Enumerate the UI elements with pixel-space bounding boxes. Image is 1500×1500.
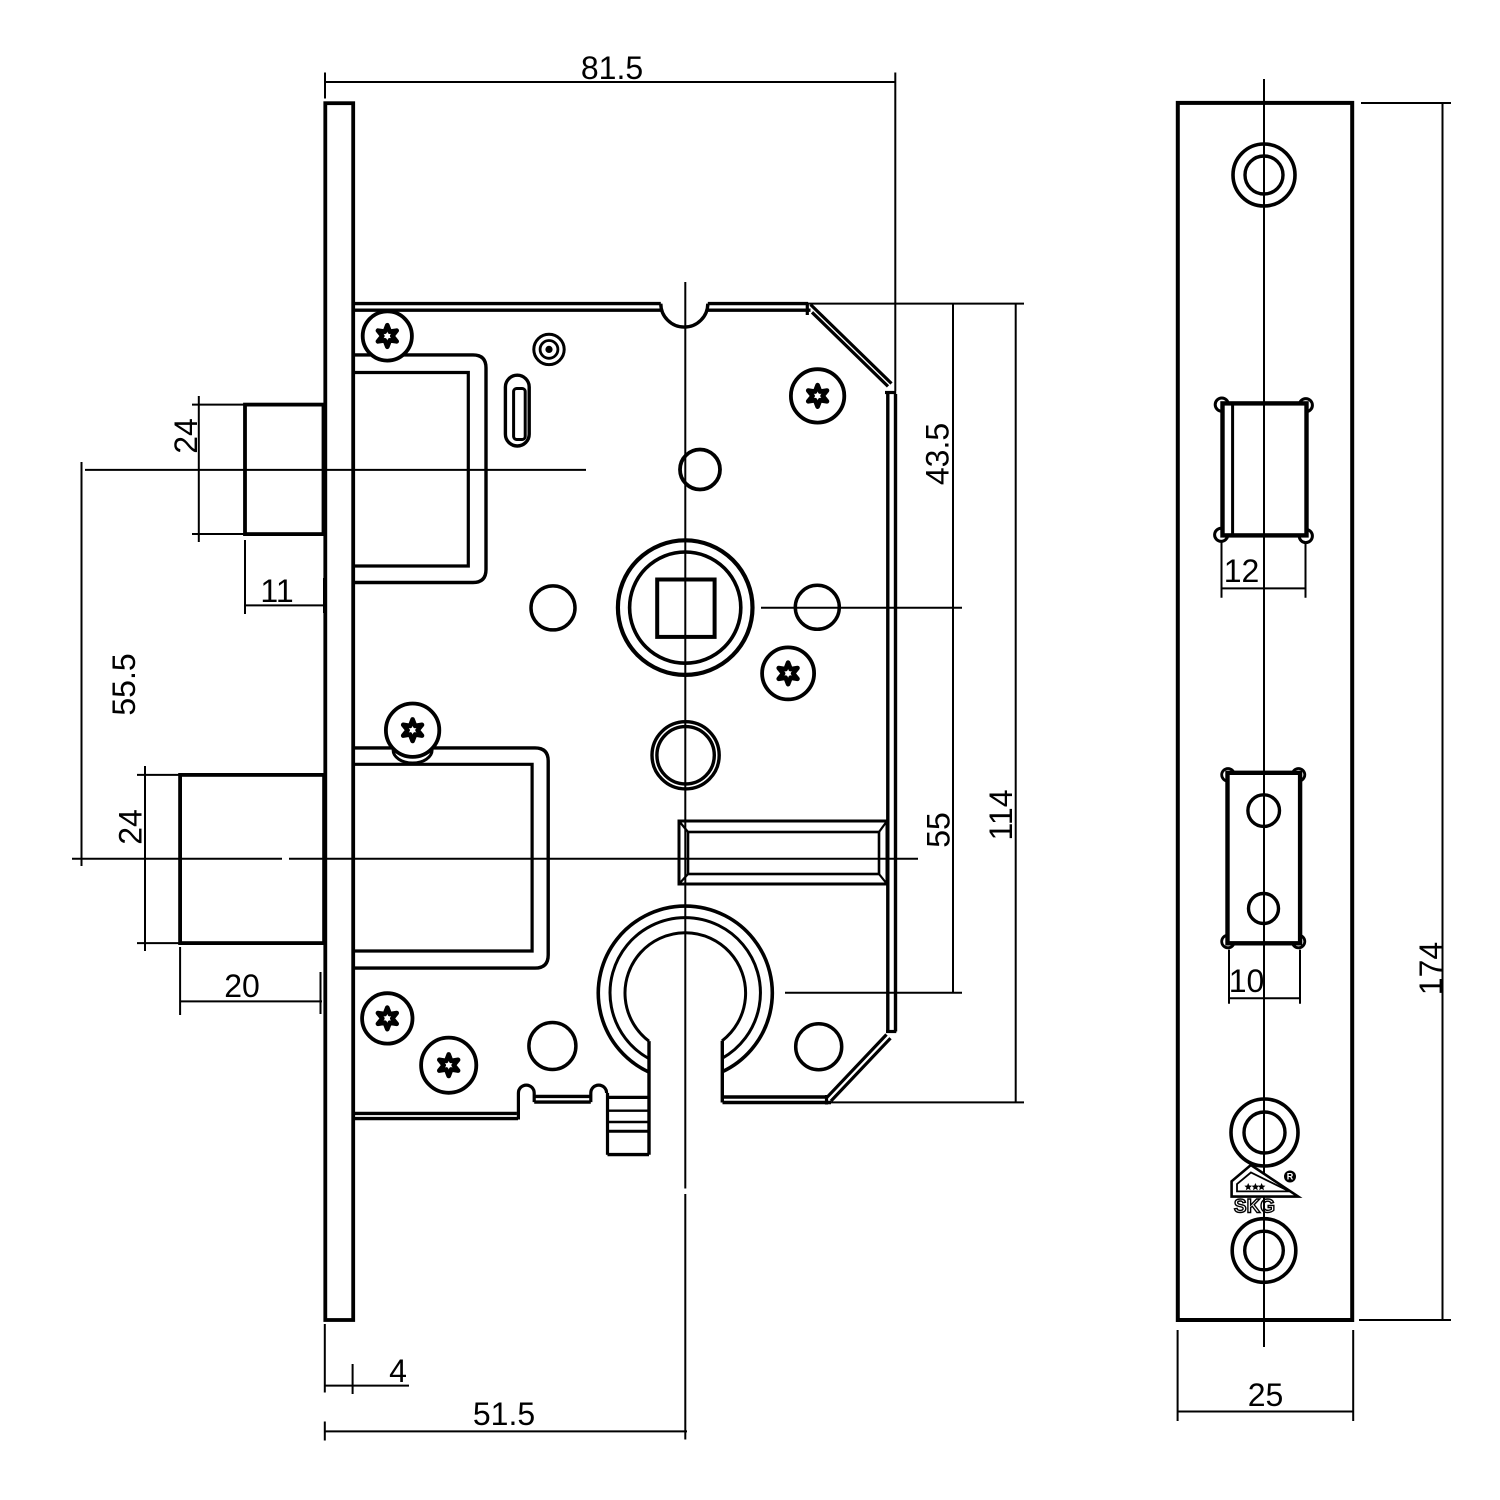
svg-text:25: 25 (1248, 1377, 1284, 1413)
svg-text:114: 114 (983, 789, 1019, 840)
svg-text:11: 11 (260, 573, 293, 609)
svg-text:81.5: 81.5 (581, 50, 643, 86)
svg-text:24: 24 (168, 418, 204, 454)
svg-text:51.5: 51.5 (473, 1396, 535, 1432)
svg-text:12: 12 (1224, 553, 1260, 589)
svg-text:55: 55 (920, 812, 956, 848)
svg-text:4: 4 (389, 1353, 407, 1389)
svg-text:10: 10 (1229, 963, 1265, 999)
svg-text:24: 24 (112, 809, 148, 845)
svg-text:55.5: 55.5 (106, 653, 142, 715)
svg-text:SKG: SKG (1234, 1197, 1275, 1218)
svg-text:R: R (1287, 1172, 1294, 1182)
svg-text:20: 20 (224, 968, 260, 1004)
svg-text:43.5: 43.5 (919, 423, 955, 485)
svg-text:174: 174 (1413, 942, 1449, 995)
